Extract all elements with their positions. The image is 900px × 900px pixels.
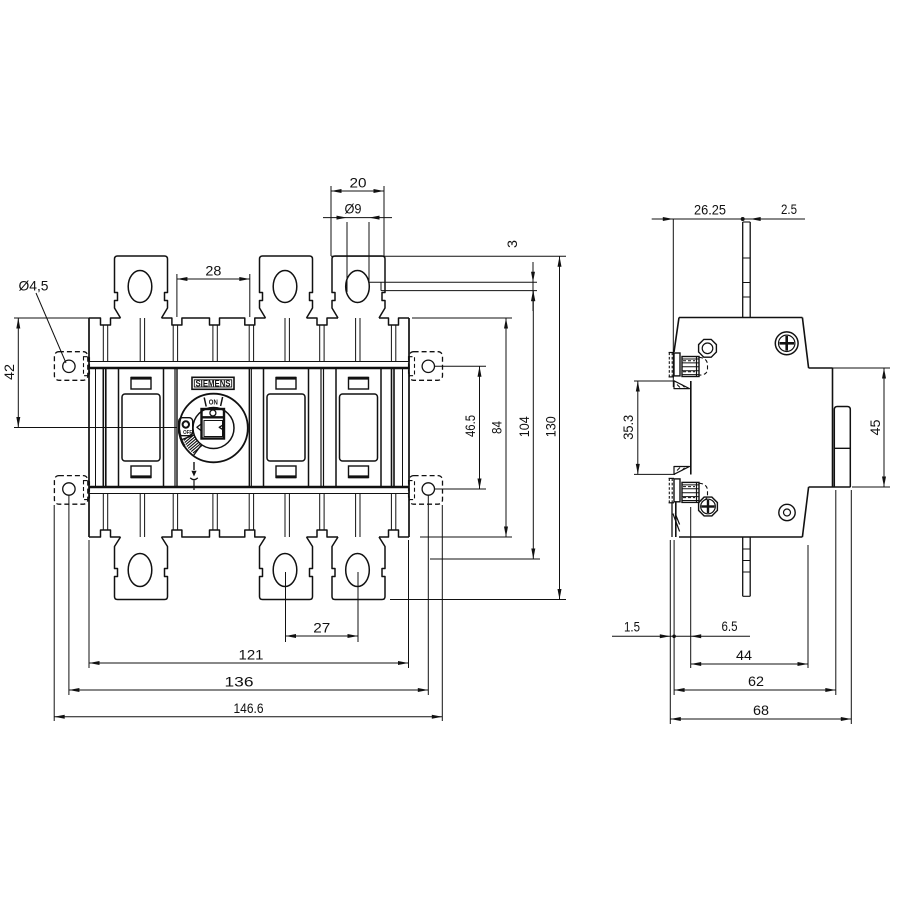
svg-text:3: 3 bbox=[504, 240, 520, 248]
svg-text:35.3: 35.3 bbox=[620, 415, 636, 440]
svg-text:104: 104 bbox=[516, 416, 532, 437]
svg-text:146.6: 146.6 bbox=[234, 700, 264, 716]
svg-text:Ø4,5: Ø4,5 bbox=[19, 278, 49, 294]
svg-text:Ø9: Ø9 bbox=[345, 201, 362, 217]
svg-text:130: 130 bbox=[543, 416, 559, 437]
svg-text:46.5: 46.5 bbox=[462, 415, 478, 437]
svg-text:44: 44 bbox=[736, 647, 752, 663]
svg-text:136: 136 bbox=[225, 673, 254, 689]
svg-text:62: 62 bbox=[748, 673, 764, 689]
svg-text:28: 28 bbox=[205, 263, 221, 279]
svg-text:1.5: 1.5 bbox=[624, 619, 640, 635]
svg-text:68: 68 bbox=[753, 702, 769, 718]
svg-text:42: 42 bbox=[1, 364, 17, 380]
svg-text:OFF: OFF bbox=[183, 430, 193, 436]
svg-text:20: 20 bbox=[350, 175, 367, 191]
svg-text:27: 27 bbox=[313, 619, 330, 635]
svg-text:ON: ON bbox=[209, 400, 218, 407]
svg-text:84: 84 bbox=[489, 421, 505, 434]
svg-text:2.5: 2.5 bbox=[781, 201, 797, 217]
svg-text:45: 45 bbox=[867, 419, 883, 435]
svg-text:26.25: 26.25 bbox=[694, 202, 726, 218]
svg-text:SIEMENS: SIEMENS bbox=[196, 379, 231, 389]
svg-text:121: 121 bbox=[239, 646, 264, 662]
svg-text:6.5: 6.5 bbox=[722, 618, 738, 634]
